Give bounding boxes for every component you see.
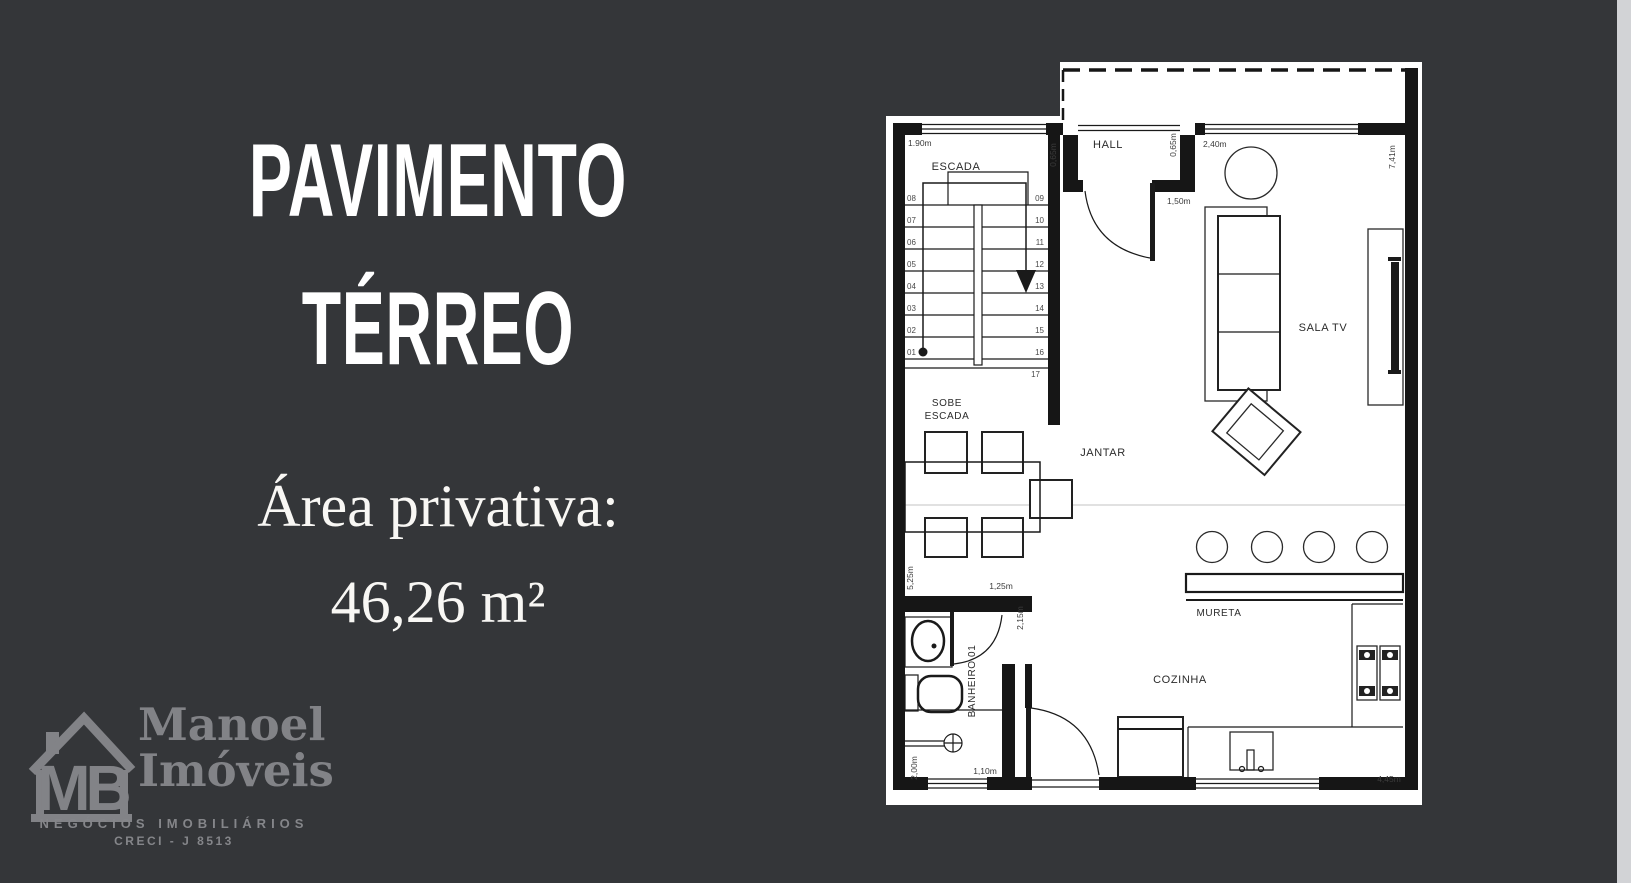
- dim-bath-right: 2,15m: [1015, 606, 1025, 630]
- dim-stair-right: 0,65m: [1048, 143, 1058, 167]
- hall-bottom-wall: [1063, 180, 1083, 192]
- window-kitchen: [1196, 777, 1319, 790]
- stair-number: 14: [1035, 304, 1044, 313]
- burner-knob: [1387, 652, 1393, 658]
- company-logo: MB Manoel Imóveis NEGÓCIOS IMOBILIÁRIOS …: [24, 688, 324, 868]
- label-sala-tv: SALA TV: [1299, 322, 1348, 334]
- dim-left-wall: 5,25m: [905, 566, 915, 590]
- label-escada: ESCADA: [932, 161, 981, 173]
- kitchen-door-leaf: [1026, 708, 1031, 777]
- mureta-counter: [1186, 574, 1403, 592]
- stair-number: 04: [907, 282, 916, 291]
- sink-drain: [932, 644, 937, 649]
- entry-door-leaf: [1150, 183, 1155, 261]
- toilet-cistern: [905, 675, 918, 711]
- tv-bracket: [1388, 370, 1401, 374]
- stair-room-wall: [1048, 135, 1060, 425]
- bar-stool: [1304, 532, 1335, 563]
- bathroom-door-leaf: [950, 612, 954, 666]
- stair-number: 17: [1031, 370, 1040, 379]
- round-side-table: [1225, 147, 1277, 199]
- hall-bottom-wall: [1152, 180, 1195, 192]
- kitchen-sink: [1230, 732, 1273, 770]
- bar-stool: [1197, 532, 1228, 563]
- bathroom-sink-basin: [912, 621, 944, 661]
- stair-number: 07: [907, 216, 916, 225]
- dim-hall-right: 0,65m: [1168, 133, 1178, 157]
- toilet-bowl: [918, 676, 962, 712]
- top-wall-segment: [893, 123, 922, 135]
- stair-number: 08: [907, 194, 916, 203]
- bathroom-right-wall: [1002, 664, 1015, 777]
- stair-number: 02: [907, 326, 916, 335]
- tv-bracket: [1388, 257, 1401, 261]
- dim-kitchen-bottom: 4,45m: [1377, 774, 1401, 784]
- logo-name-line-1: Manoel: [138, 702, 334, 748]
- stair-number: 15: [1035, 326, 1044, 335]
- right-edge-strip: [1617, 0, 1631, 883]
- label-cozinha: COZINHA: [1153, 674, 1207, 686]
- terrace-paper: [1060, 62, 1422, 120]
- top-wall-segment: [1046, 123, 1063, 135]
- dim-stair-width: 1.90m: [908, 138, 932, 148]
- dining-chair: [982, 432, 1023, 473]
- area-value: 46,26 m²: [128, 554, 748, 650]
- dim-bath-left: 2,00m: [909, 756, 919, 780]
- bar-stool: [1357, 532, 1388, 563]
- right-exterior-wall: [1405, 68, 1418, 790]
- top-wall-segment: [1195, 123, 1205, 135]
- window-bathroom: [928, 777, 987, 790]
- logo-tagline: NEGÓCIOS IMOBILIÁRIOS: [26, 816, 322, 831]
- burner-knob: [1364, 652, 1370, 658]
- bathroom-top-wall: [893, 596, 1032, 612]
- stair-path-start-dot: [919, 348, 928, 357]
- label-hall: HALL: [1093, 139, 1123, 151]
- label-sobe: SOBE: [932, 398, 962, 409]
- dim-bath-bottom: 1,10m: [973, 766, 997, 776]
- label-mureta: MURETA: [1196, 608, 1241, 619]
- bottom-wall-segment: [987, 777, 1032, 790]
- tv-panel: [1391, 262, 1399, 370]
- slide: { "title": {"line1": "PAVIMENTO", "line2…: [0, 0, 1631, 883]
- area-label: Área privativa:: [128, 458, 748, 554]
- stair-divider: [974, 205, 982, 365]
- logo-name-line-2: Imóveis: [138, 748, 334, 794]
- dining-chair: [982, 518, 1023, 557]
- stair-number: 03: [907, 304, 916, 313]
- dining-chair: [925, 518, 967, 557]
- label-sobe-escada: ESCADA: [925, 411, 970, 422]
- stair-number: 16: [1035, 348, 1044, 357]
- window-top-left: [922, 123, 1046, 135]
- stair-number: 01: [907, 348, 916, 357]
- stair-number: 13: [1035, 282, 1044, 291]
- stair-number: 11: [1036, 238, 1045, 247]
- dim-bath-top: 1,25m: [989, 581, 1013, 591]
- label-banheiro: BANHEIRO 01: [967, 645, 978, 718]
- dim-hall-width: 2,40m: [1203, 139, 1227, 149]
- stair-number: 12: [1035, 260, 1044, 269]
- title-line-2: TÉRREO: [246, 256, 630, 404]
- dim-entry: 1,50m: [1167, 196, 1191, 206]
- title-line-1: PAVIMENTO: [246, 108, 630, 256]
- stair-number: 10: [1035, 216, 1044, 225]
- stair-number: 06: [907, 238, 916, 247]
- top-wall-segment: [1358, 123, 1405, 135]
- private-area-block: Área privativa: 46,26 m²: [128, 458, 748, 650]
- logo-names: Manoel Imóveis: [138, 702, 334, 794]
- logo-creci: CRECI - J 8513: [26, 834, 322, 848]
- logo-monogram: MB: [37, 752, 129, 824]
- fridge: [1118, 717, 1183, 777]
- house-icon: MB: [28, 710, 136, 832]
- left-exterior-wall: [893, 123, 905, 790]
- burner-knob: [1364, 688, 1370, 694]
- dim-right-wall: 7,41m: [1387, 145, 1397, 169]
- label-jantar: JANTAR: [1080, 447, 1126, 459]
- stair-number: 05: [907, 260, 916, 269]
- kitchen-door-jamb: [1025, 664, 1032, 708]
- window-top-right: [1205, 123, 1358, 135]
- dining-chair: [925, 432, 967, 473]
- floor-plan: 08 07 06 05 04 03 02 01 09 10 11 12 13 1…: [850, 55, 1430, 817]
- bar-stool: [1252, 532, 1283, 563]
- bottom-wall-segment: [1099, 777, 1196, 790]
- sofa-seat: [1218, 216, 1280, 390]
- page-title: PAVIMENTO TÉRREO: [128, 108, 748, 403]
- dining-chair: [1030, 480, 1072, 518]
- burner-knob: [1387, 688, 1393, 694]
- stair-number: 09: [1035, 194, 1044, 203]
